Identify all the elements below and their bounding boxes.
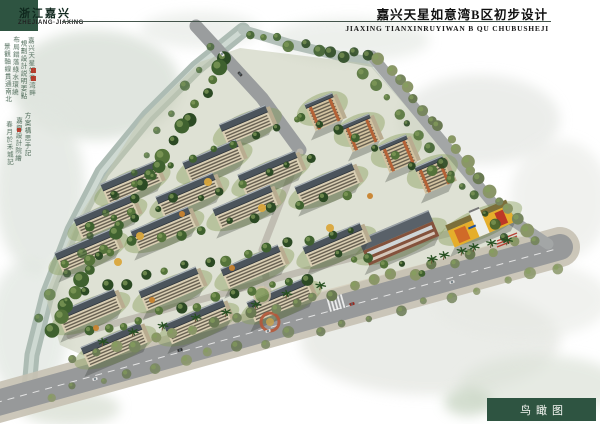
calligraphy-column: 方案構思手記: [22, 112, 30, 157]
calligraphy-column: 嘉兴天星如意湾畔: [25, 37, 35, 97]
calligraphy-column: 景觀軸線貫通南北: [1, 43, 11, 103]
red-seal-stamp: [31, 76, 36, 81]
red-seal-stamp: [17, 128, 21, 132]
caption-box: 鸟瞰图: [487, 398, 596, 421]
aerial-rendering: [0, 0, 600, 424]
calligraphy-column: 嘉興設計院繪: [12, 117, 21, 162]
region-title: 浙江嘉兴: [19, 5, 71, 21]
calligraphy-column: 春月於禾城記: [3, 121, 12, 166]
red-seal-stamp: [31, 68, 36, 73]
project-title: 嘉兴天星如意湾B区初步设计: [377, 4, 548, 23]
presentation-board: 浙江嘉兴 ZHEJIANG·JIAXING 嘉兴天星如意湾B区初步设计 JIAX…: [0, 0, 600, 424]
calligraphy-column: 布局錯落綠水環繞: [9, 36, 19, 96]
project-title-pinyin: JIAXING TIANXINRUYIWAN B QU CHUBUSHEJI: [345, 24, 549, 33]
caption-label: 鸟瞰图: [515, 402, 568, 418]
calligraphy-column: 規劃設計説明要點: [18, 40, 26, 100]
